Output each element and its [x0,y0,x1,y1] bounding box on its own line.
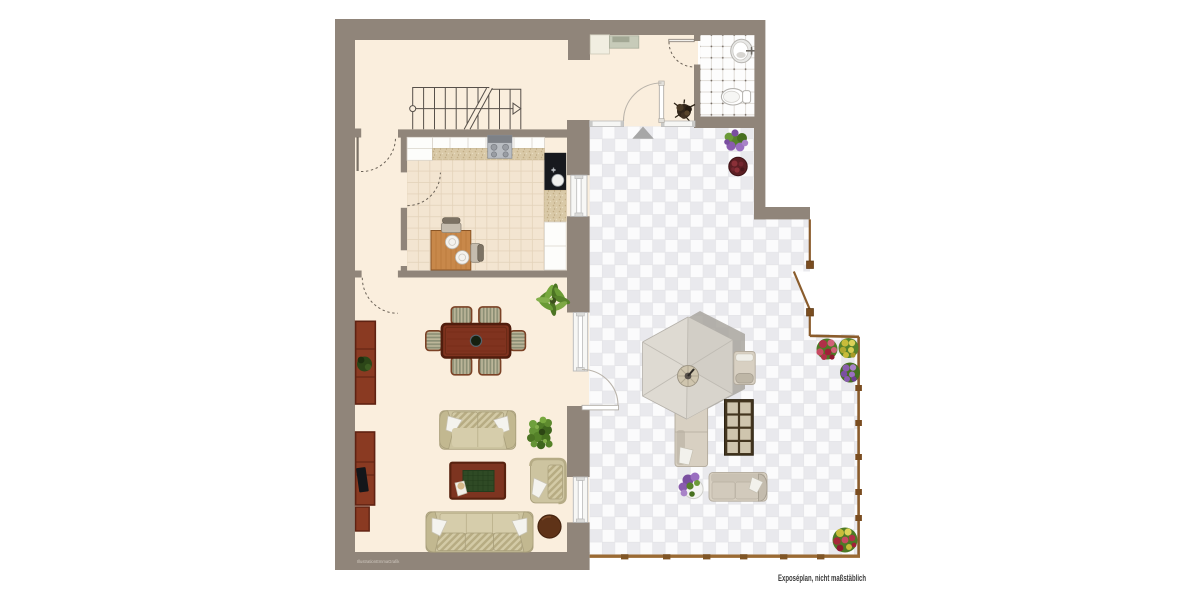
svg-text:IllustrationEmmaGrafik: IllustrationEmmaGrafik [357,559,400,564]
svg-text:Exposéplan, nicht maßstäblich: Exposéplan, nicht maßstäblich [778,573,866,583]
